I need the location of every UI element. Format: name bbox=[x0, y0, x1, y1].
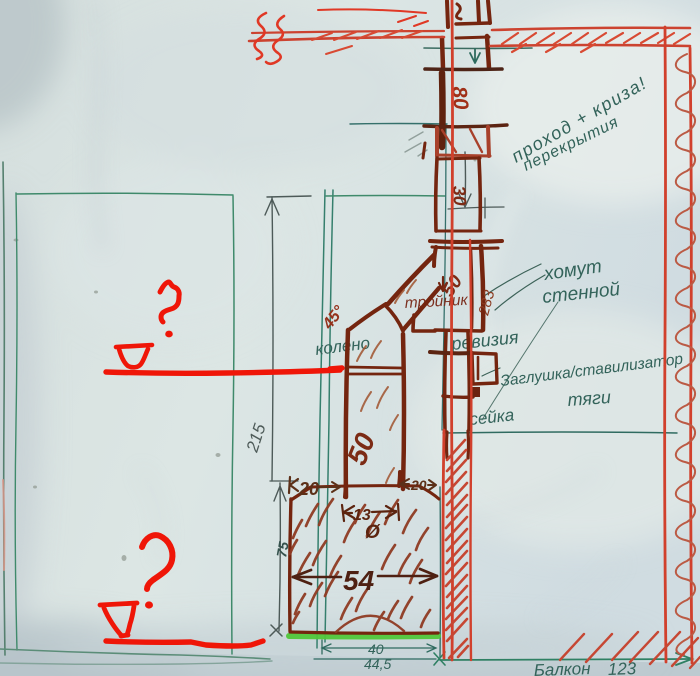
svg-text:тройник: тройник bbox=[404, 292, 469, 312]
svg-text:тяги: тяги bbox=[567, 387, 612, 410]
svg-text:80: 80 bbox=[447, 85, 472, 111]
svg-text:123: 123 bbox=[607, 659, 637, 676]
svg-text:40: 40 bbox=[368, 641, 384, 657]
svg-text:Балкон: Балкон bbox=[533, 659, 591, 676]
svg-text:44,5: 44,5 bbox=[364, 656, 391, 672]
svg-text:Ø: Ø bbox=[365, 522, 381, 543]
svg-text:54: 54 bbox=[343, 565, 375, 596]
svg-text:20: 20 bbox=[410, 477, 427, 493]
svg-text:20: 20 bbox=[298, 479, 319, 499]
